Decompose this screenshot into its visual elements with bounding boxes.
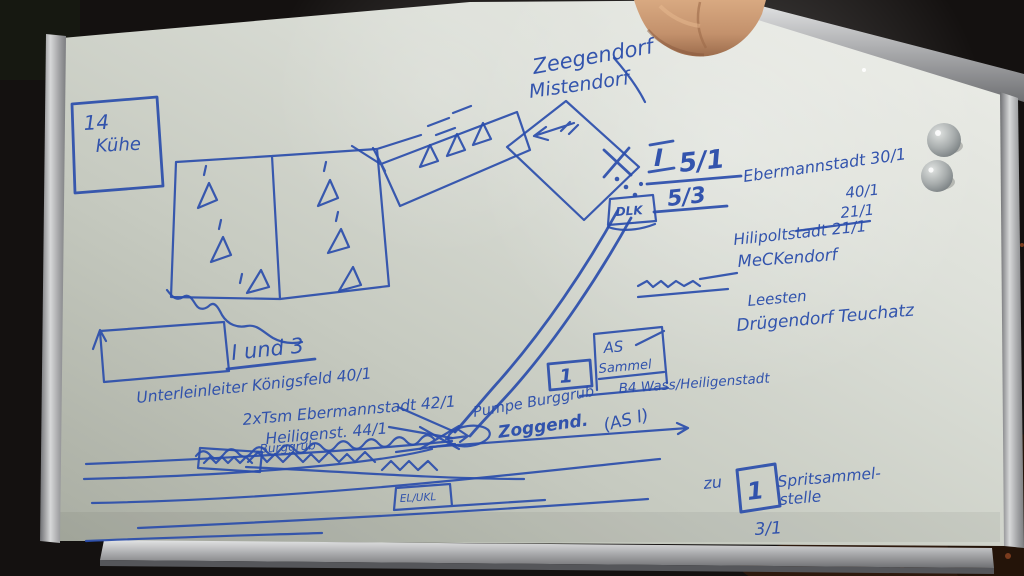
magnet-bottom: [921, 160, 953, 192]
as-label: AS: [602, 337, 625, 357]
el-box-label: EL/UKL: [400, 491, 437, 505]
sprit-label2: stelle: [779, 487, 822, 509]
whiteboard-scene: Zeegendorf Mistendorf 14 Kühe I 5/1 5/3 …: [0, 0, 1024, 576]
cows-count: 14: [83, 110, 110, 135]
cows-label: Kühe: [95, 134, 141, 157]
list-40-1: 40/1: [845, 181, 880, 202]
point1-label: 1: [559, 365, 574, 388]
unit-roman: I: [654, 144, 663, 172]
vehicle-box-label: DLK: [615, 203, 645, 219]
magnet-top: [927, 123, 961, 157]
unit-bottom: 5/3: [666, 183, 707, 212]
unit-top: 5/1: [678, 144, 727, 179]
zu-label: zu: [701, 472, 722, 493]
glint: [862, 68, 866, 72]
sprit-number: 3/1: [754, 518, 783, 540]
photo-of-whiteboard: Zeegendorf Mistendorf 14 Kühe I 5/1 5/3 …: [0, 0, 1024, 576]
sprit-point-label: 1: [745, 476, 765, 506]
